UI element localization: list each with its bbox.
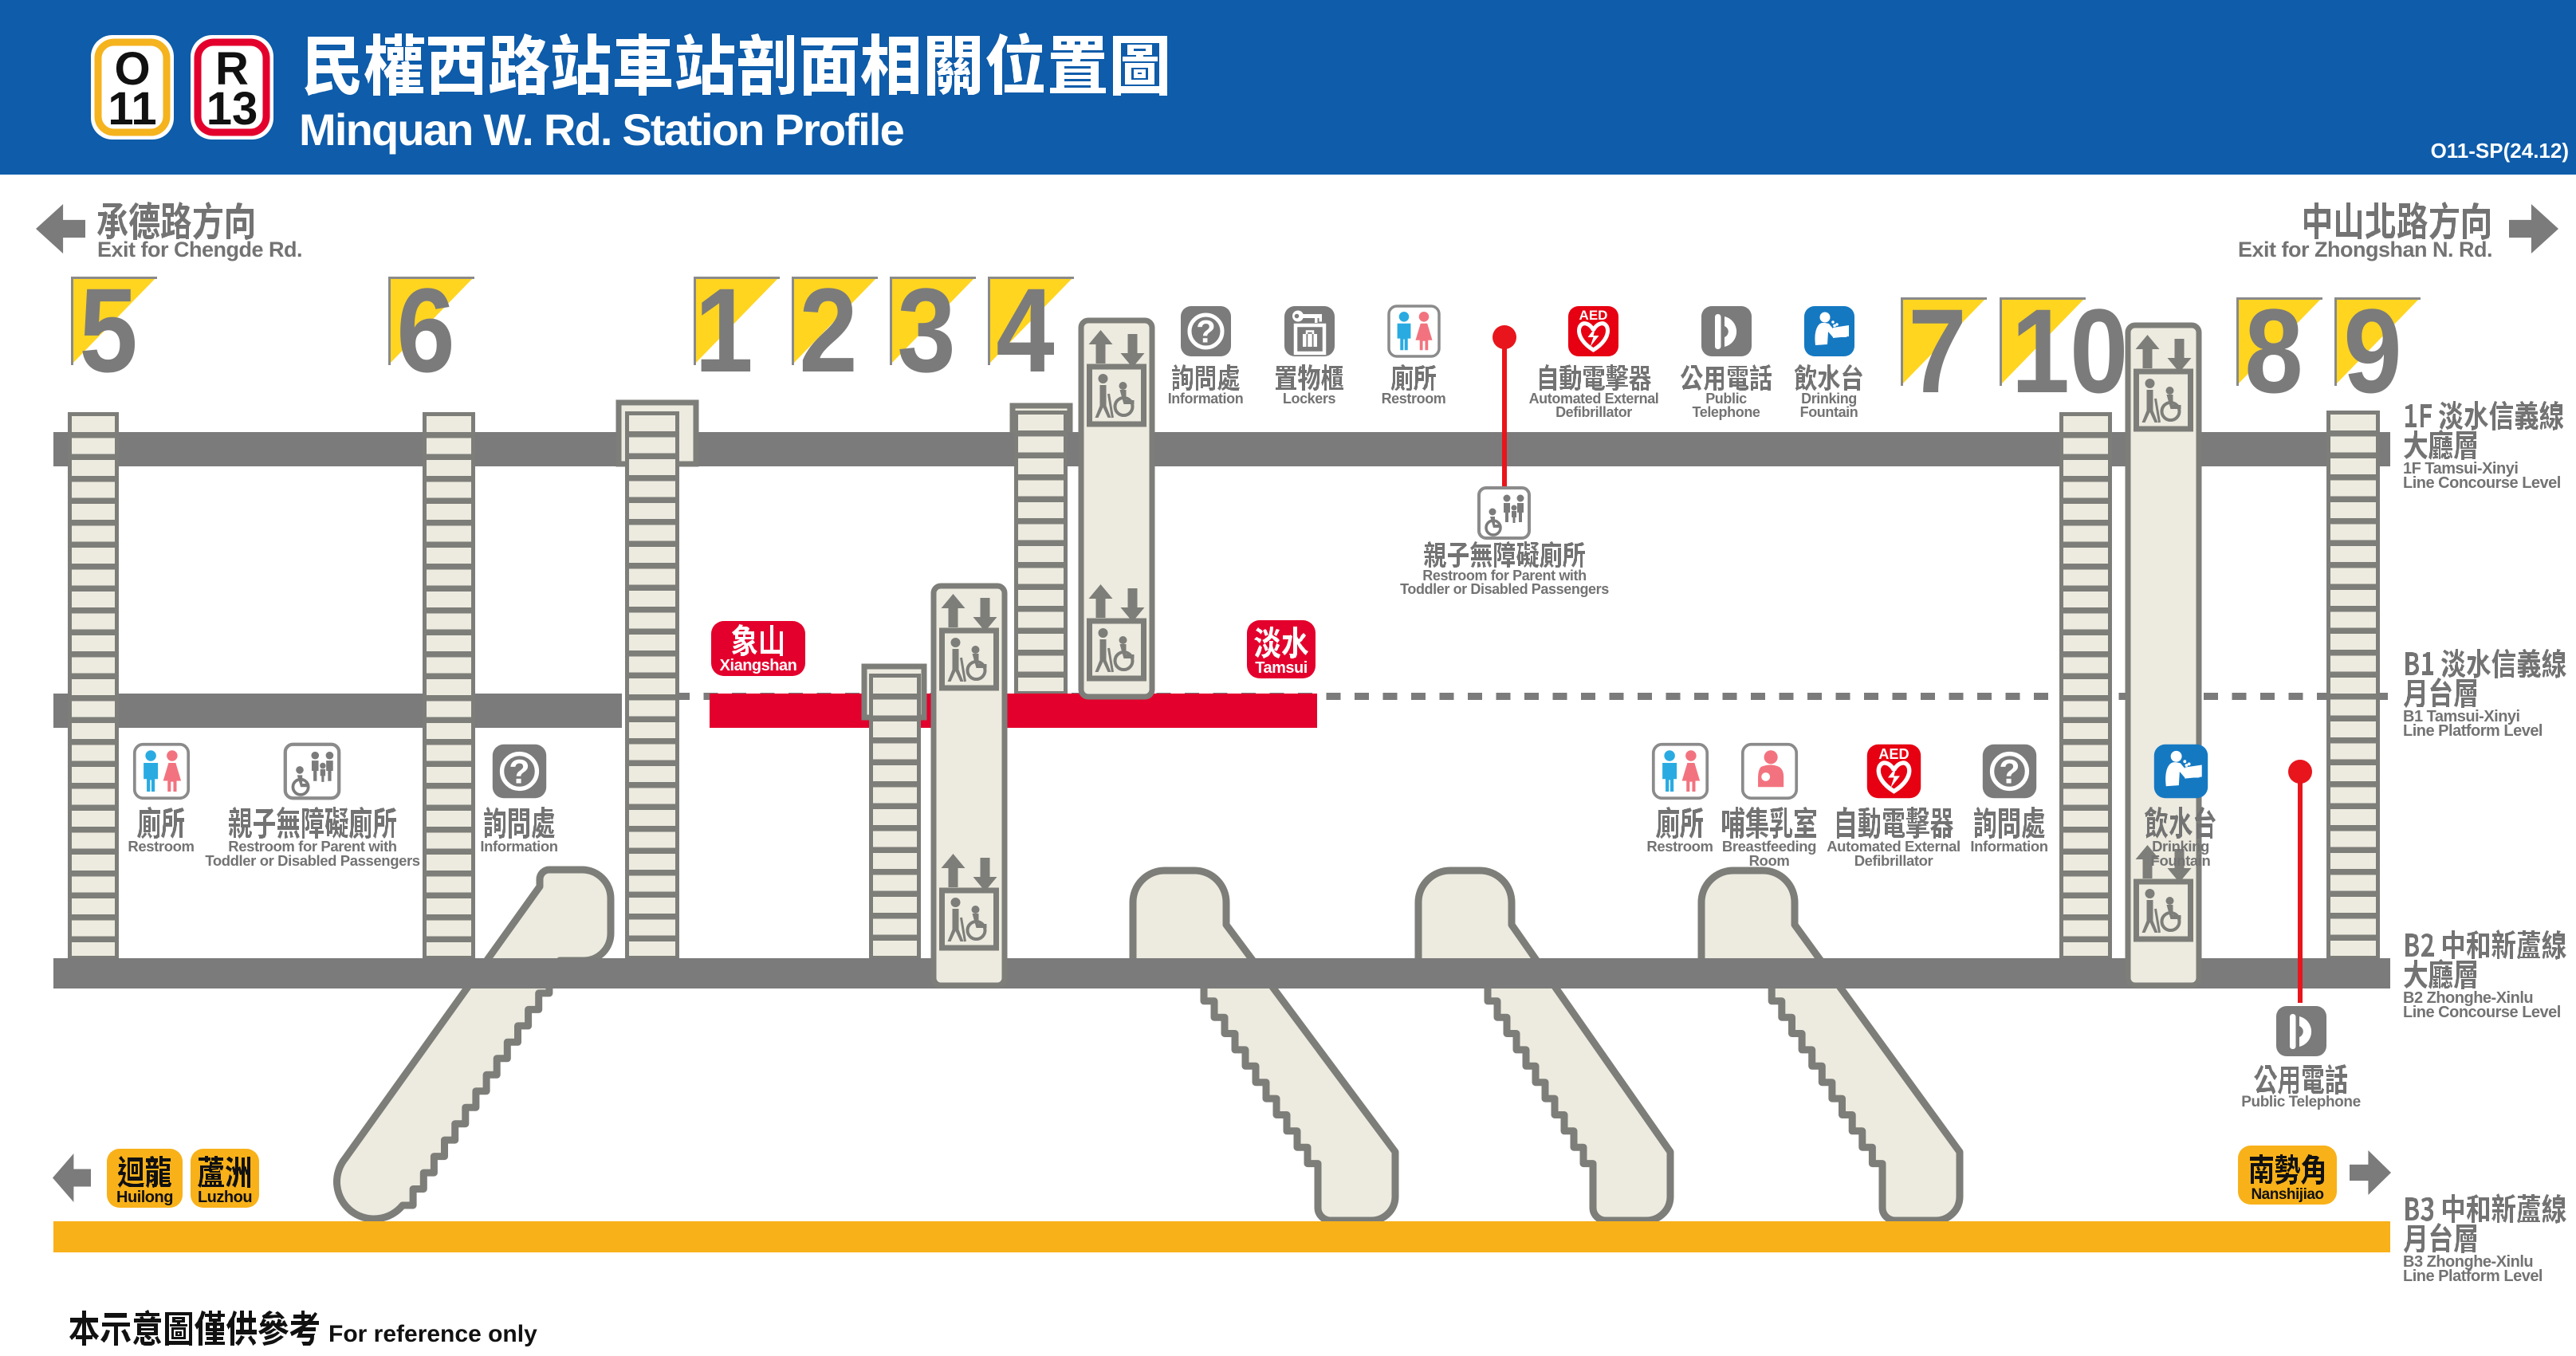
svg-text:Line Concourse Level: Line Concourse Level — [2403, 1004, 2561, 1021]
svg-text:Exit for Chengde Rd.: Exit for Chengde Rd. — [97, 238, 302, 261]
svg-text:AED: AED — [1878, 746, 1909, 762]
svg-text:Public Telephone: Public Telephone — [2241, 1094, 2361, 1110]
svg-text:9: 9 — [2343, 284, 2401, 418]
svg-text:Information: Information — [480, 838, 557, 855]
svg-text:Line Platform Level: Line Platform Level — [2403, 722, 2543, 740]
svg-text:Restroom: Restroom — [1382, 391, 1446, 407]
svg-text:Defibrillator: Defibrillator — [1854, 852, 1933, 869]
svg-text:O11-SP(24.12): O11-SP(24.12) — [2431, 139, 2569, 163]
svg-text:6: 6 — [396, 263, 454, 397]
svg-text:Line Platform Level: Line Platform Level — [2403, 1268, 2543, 1285]
svg-text:Fountain: Fountain — [1800, 404, 1858, 420]
svg-text:7: 7 — [1908, 284, 1966, 418]
svg-text:11: 11 — [108, 83, 156, 135]
svg-text:Exit for Zhongshan N. Rd.: Exit for Zhongshan N. Rd. — [2238, 238, 2492, 261]
svg-text:AED: AED — [1579, 308, 1608, 323]
svg-text:For reference only: For reference only — [328, 1321, 537, 1347]
svg-text:Restroom: Restroom — [128, 838, 194, 855]
svg-text:Toddler or Disabled Passengers: Toddler or Disabled Passengers — [1400, 581, 1609, 597]
svg-text:Nanshijiao: Nanshijiao — [2251, 1186, 2323, 1203]
svg-text:Telephone: Telephone — [1692, 404, 1760, 420]
svg-text:?: ? — [1999, 753, 2020, 791]
svg-text:Tamsui: Tamsui — [1255, 659, 1308, 677]
svg-text:Line Concourse Level: Line Concourse Level — [2403, 474, 2561, 492]
svg-text:Lockers: Lockers — [1283, 391, 1336, 407]
svg-text:Defibrillator: Defibrillator — [1555, 404, 1632, 420]
svg-text:4: 4 — [996, 263, 1054, 397]
svg-text:Luzhou: Luzhou — [198, 1189, 252, 1206]
svg-text:1: 1 — [694, 263, 753, 397]
svg-text:Huilong: Huilong — [116, 1189, 173, 1206]
svg-text:Toddler or Disabled Passengers: Toddler or Disabled Passengers — [205, 852, 419, 869]
svg-text:Minquan W. Rd. Station Profile: Minquan W. Rd. Station Profile — [299, 104, 904, 155]
svg-text:Xiangshan: Xiangshan — [720, 657, 797, 674]
svg-text:Room: Room — [1749, 852, 1790, 869]
svg-text:8: 8 — [2244, 284, 2303, 418]
svg-text:13: 13 — [206, 83, 258, 135]
svg-text:3: 3 — [897, 263, 955, 397]
svg-text:Fountain: Fountain — [2151, 852, 2211, 869]
svg-text:?: ? — [1196, 315, 1215, 350]
svg-text:5: 5 — [79, 263, 137, 397]
svg-text:2: 2 — [799, 263, 857, 397]
svg-text:10: 10 — [2012, 284, 2129, 418]
svg-text:?: ? — [509, 753, 529, 791]
svg-text:Restroom: Restroom — [1646, 838, 1713, 855]
svg-text:Information: Information — [1168, 391, 1244, 407]
svg-text:Information: Information — [1970, 838, 2047, 855]
